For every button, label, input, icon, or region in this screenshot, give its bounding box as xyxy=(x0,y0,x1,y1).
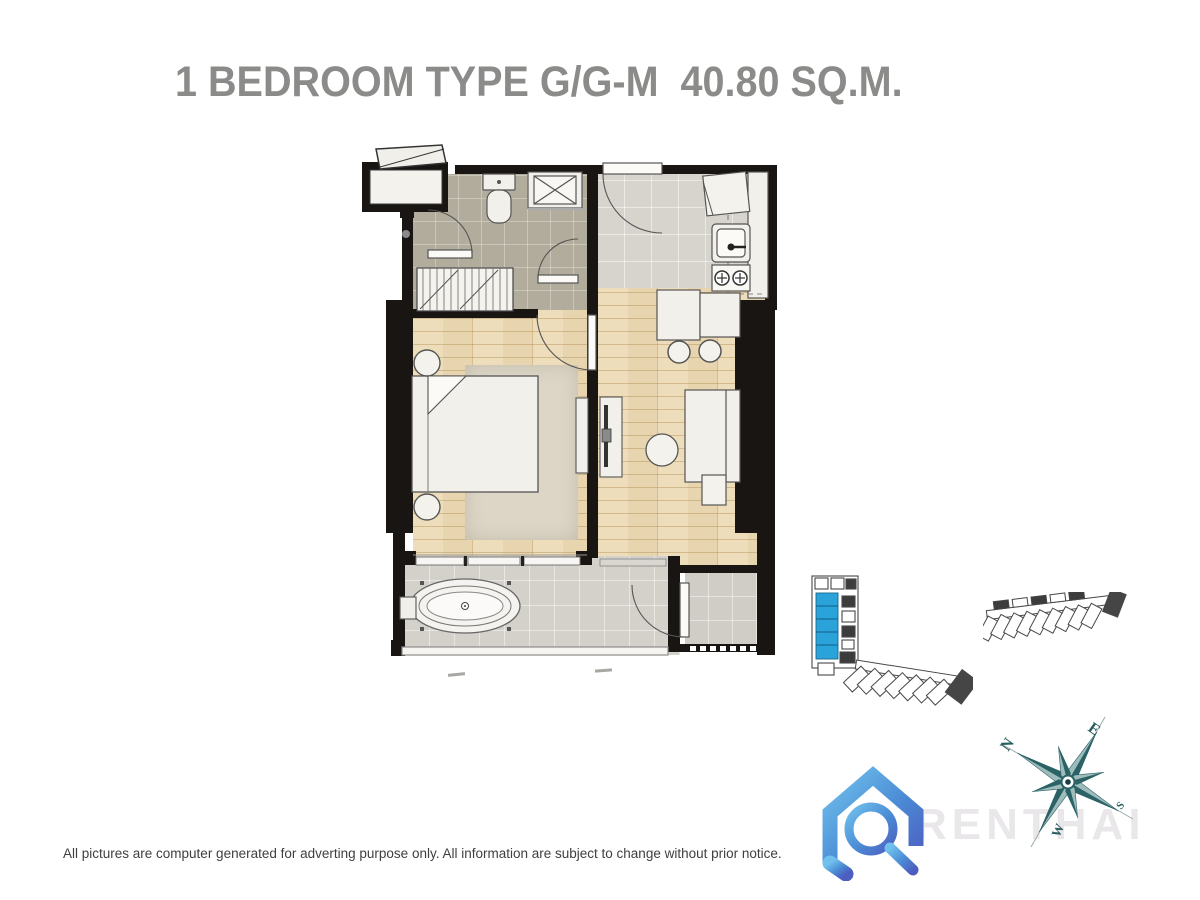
floor-plan-drawing xyxy=(360,143,780,665)
disclaimer-text: All pictures are computer generated for … xyxy=(63,846,782,861)
floorplan-page: 1 BEDROOM TYPE G/G-M 40.80 SQ.M. xyxy=(0,0,1200,900)
tv-console xyxy=(576,397,622,477)
balcony-railing xyxy=(402,647,668,655)
kitchen-sink xyxy=(712,224,750,262)
compass-rose: N E S W xyxy=(993,712,1143,852)
refrigerator xyxy=(703,172,750,216)
magnifier-icon xyxy=(848,806,914,871)
dining-table xyxy=(657,290,740,363)
compass-label-west: W xyxy=(1048,821,1067,839)
door-stopper xyxy=(402,230,410,238)
toilet xyxy=(483,174,515,223)
bathtub xyxy=(400,579,520,633)
sliding-doors xyxy=(413,555,666,566)
bed xyxy=(412,376,538,492)
floor-plan xyxy=(360,143,780,665)
building-key-plan-2 xyxy=(983,592,1133,664)
nightstand xyxy=(414,350,440,376)
stove xyxy=(712,265,750,291)
compass-label-east: E xyxy=(1085,719,1103,739)
sofa xyxy=(685,390,740,505)
highlighted-units xyxy=(816,593,838,659)
brand-logo-house-magnifier xyxy=(816,763,936,881)
nightstand xyxy=(414,494,440,520)
wardrobe xyxy=(417,268,513,311)
coffee-table xyxy=(646,434,678,466)
dimension-tick xyxy=(448,672,465,677)
page-title: 1 BEDROOM TYPE G/G-M 40.80 SQ.M. xyxy=(175,58,903,107)
dimension-tick xyxy=(595,668,612,672)
shower-tray xyxy=(528,172,587,209)
building-key-plan-highlighted xyxy=(798,566,973,714)
entrance-alcove xyxy=(370,145,446,204)
